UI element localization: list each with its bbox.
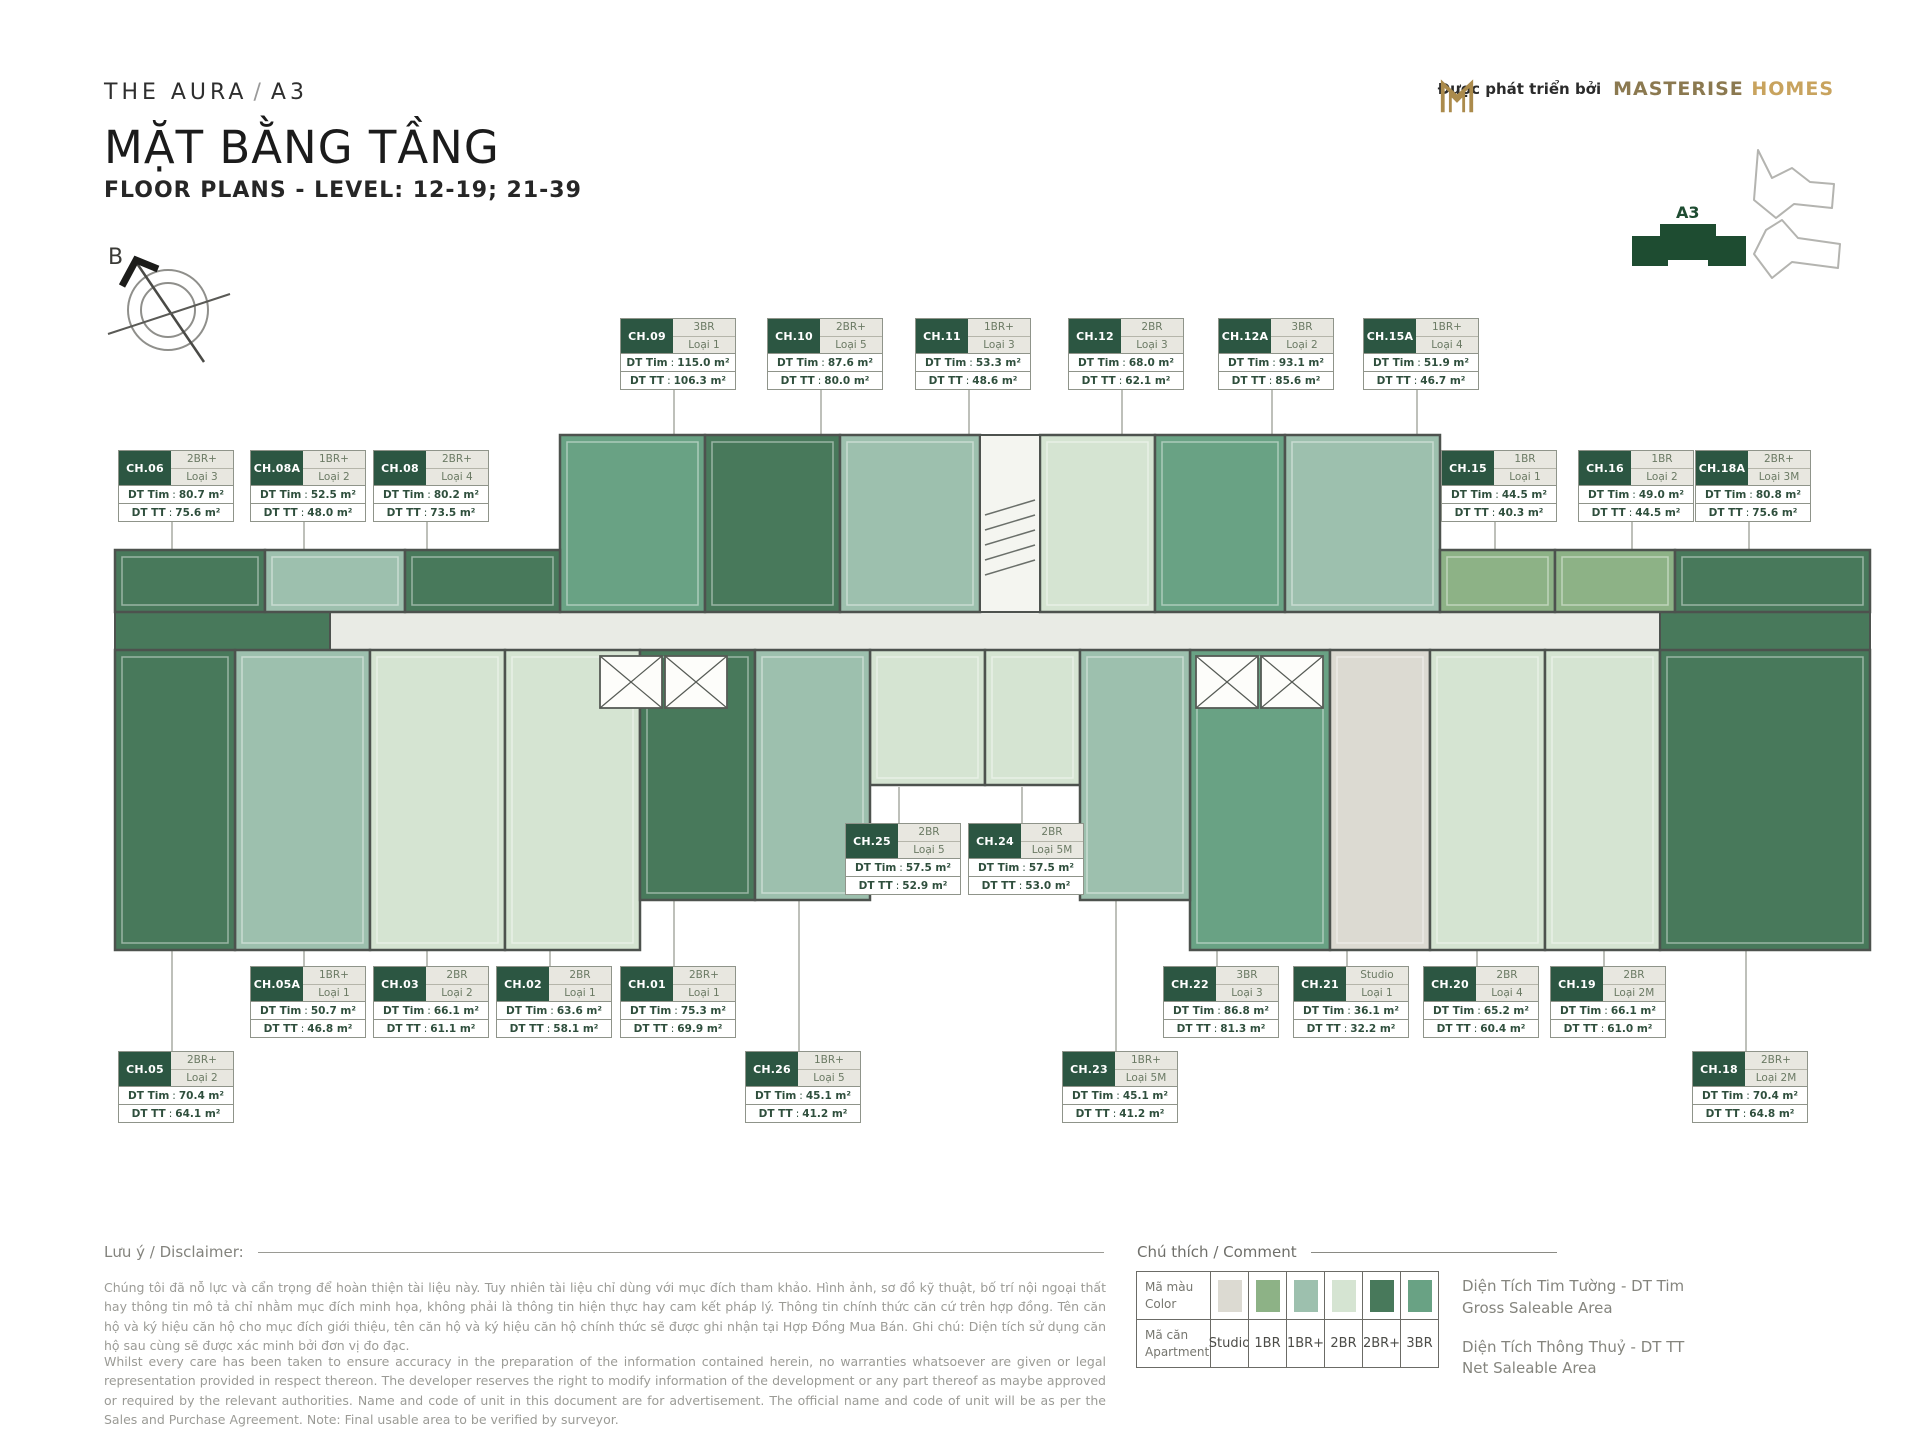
unit-net-area: DT TT62.1 m² bbox=[1068, 371, 1184, 390]
unit-variant: Loại 2M bbox=[1745, 1070, 1807, 1087]
unit-type: 1BR+ bbox=[303, 451, 365, 469]
unit-net-area: DT TT69.9 m² bbox=[620, 1019, 736, 1038]
plan-unit-CH.21 bbox=[1330, 650, 1430, 950]
floor-plan-drawing bbox=[0, 0, 1920, 1440]
color-swatch bbox=[1332, 1280, 1356, 1312]
unit-type: 2BR bbox=[1603, 967, 1665, 985]
unit-id: CH.18A bbox=[1696, 451, 1748, 485]
legend-note-net: Diện Tích Thông Thuỷ - DT TT Net Saleabl… bbox=[1462, 1337, 1842, 1381]
color-swatch bbox=[1370, 1280, 1394, 1312]
unit-card-CH.09: CH.093BRLoại 1DT Tim115.0 m²DT TT106.3 m… bbox=[620, 318, 736, 390]
unit-type: 2BR bbox=[1476, 967, 1538, 985]
unit-net-area: DT TT53.0 m² bbox=[968, 876, 1084, 895]
unit-gross-area: DT Tim45.1 m² bbox=[1062, 1086, 1178, 1105]
plan-unit-CH.19 bbox=[1545, 650, 1660, 950]
unit-id: CH.02 bbox=[497, 967, 549, 1001]
unit-variant: Loại 1 bbox=[1494, 469, 1556, 486]
unit-id: CH.11 bbox=[916, 319, 968, 353]
legend-apartment-type: 2BR bbox=[1324, 1319, 1363, 1368]
unit-card-CH.24: CH.242BRLoại 5MDT Tim57.5 m²DT TT53.0 m² bbox=[968, 823, 1084, 895]
unit-id: CH.16 bbox=[1579, 451, 1631, 485]
unit-card-CH.15A: CH.15A1BR+Loại 4DT Tim51.9 m²DT TT46.7 m… bbox=[1363, 318, 1479, 390]
unit-net-area: DT TT75.6 m² bbox=[118, 503, 234, 522]
unit-gross-area: DT Tim70.4 m² bbox=[118, 1086, 234, 1105]
unit-variant: Loại 2 bbox=[1631, 469, 1693, 486]
unit-id: CH.24 bbox=[969, 824, 1021, 858]
unit-net-area: DT TT75.6 m² bbox=[1695, 503, 1811, 522]
unit-card-header: CH.111BR+Loại 3 bbox=[915, 318, 1031, 354]
plan-unit-CH.18 bbox=[1660, 650, 1870, 950]
unit-variant: Loại 5 bbox=[898, 842, 960, 859]
unit-id: CH.12 bbox=[1069, 319, 1121, 353]
plan-unit-CH.24 bbox=[985, 650, 1080, 785]
unit-variant: Loại 4 bbox=[1416, 337, 1478, 354]
unit-net-area: DT TT48.0 m² bbox=[250, 503, 366, 522]
unit-id: CH.12A bbox=[1219, 319, 1271, 353]
disclaimer-rule bbox=[258, 1252, 1104, 1253]
plan-unit-CH.10 bbox=[705, 435, 840, 612]
unit-gross-area: DT Tim57.5 m² bbox=[968, 858, 1084, 877]
plan-unit-CH.12A bbox=[1155, 435, 1285, 612]
legend-apartment-type: 3BR bbox=[1400, 1319, 1439, 1368]
unit-id: CH.05A bbox=[251, 967, 303, 1001]
color-swatch bbox=[1408, 1280, 1432, 1312]
unit-gross-area: DT Tim80.7 m² bbox=[118, 485, 234, 504]
unit-card-CH.10: CH.102BR+Loại 5DT Tim87.6 m²DT TT80.0 m² bbox=[767, 318, 883, 390]
unit-type: 1BR bbox=[1494, 451, 1556, 469]
unit-net-area: DT TT46.7 m² bbox=[1363, 371, 1479, 390]
unit-id: CH.08A bbox=[251, 451, 303, 485]
unit-card-header: CH.15A1BR+Loại 4 bbox=[1363, 318, 1479, 354]
unit-type: 1BR+ bbox=[1416, 319, 1478, 337]
unit-net-area: DT TT41.2 m² bbox=[745, 1104, 861, 1123]
disclaimer-english: Whilst every care has been taken to ensu… bbox=[104, 1352, 1106, 1430]
color-swatch bbox=[1294, 1280, 1318, 1312]
unit-card-CH.08A: CH.08A1BR+Loại 2DT Tim52.5 m²DT TT48.0 m… bbox=[250, 450, 366, 522]
unit-variant: Loại 5 bbox=[820, 337, 882, 354]
unit-net-area: DT TT41.2 m² bbox=[1062, 1104, 1178, 1123]
unit-gross-area: DT Tim53.3 m² bbox=[915, 353, 1031, 372]
unit-card-CH.22: CH.223BRLoại 3DT Tim86.8 m²DT TT81.3 m² bbox=[1163, 966, 1279, 1038]
plan-unit-CH.08A bbox=[265, 550, 405, 612]
legend-table: Mã màu Color Mã cănApartmentStudio1BR1BR… bbox=[1137, 1272, 1439, 1368]
unit-card-header: CH.161BRLoại 2 bbox=[1578, 450, 1694, 486]
unit-gross-area: DT Tim44.5 m² bbox=[1441, 485, 1557, 504]
legend-notes: Diện Tích Tim Tường - DT Tim Gross Salea… bbox=[1462, 1276, 1842, 1397]
unit-card-CH.08: CH.082BR+Loại 4DT Tim80.2 m²DT TT73.5 m² bbox=[373, 450, 489, 522]
unit-gross-area: DT Tim115.0 m² bbox=[620, 353, 736, 372]
unit-card-header: CH.151BRLoại 1 bbox=[1441, 450, 1557, 486]
unit-card-header: CH.21StudioLoại 1 bbox=[1293, 966, 1409, 1002]
unit-variant: Loại 1 bbox=[549, 985, 611, 1002]
unit-variant: Loại 1 bbox=[673, 985, 735, 1002]
unit-card-header: CH.242BRLoại 5M bbox=[968, 823, 1084, 859]
plan-unit-CH.03 bbox=[370, 650, 505, 950]
unit-card-header: CH.08A1BR+Loại 2 bbox=[250, 450, 366, 486]
legend-color-row-label: Mã màu Color bbox=[1136, 1271, 1211, 1320]
unit-variant: Loại 1 bbox=[303, 985, 365, 1002]
unit-id: CH.19 bbox=[1551, 967, 1603, 1001]
plan-unit-CH.15 bbox=[1440, 550, 1555, 612]
legend-note-gross: Diện Tích Tim Tường - DT Tim Gross Salea… bbox=[1462, 1276, 1842, 1320]
unit-id: CH.21 bbox=[1294, 967, 1346, 1001]
unit-type: 2BR bbox=[1121, 319, 1183, 337]
unit-variant: Loại 3 bbox=[1216, 985, 1278, 1002]
unit-card-header: CH.223BRLoại 3 bbox=[1163, 966, 1279, 1002]
plan-unit-CH.09 bbox=[560, 435, 705, 612]
unit-net-area: DT TT64.1 m² bbox=[118, 1104, 234, 1123]
unit-gross-area: DT Tim49.0 m² bbox=[1578, 485, 1694, 504]
elevator-box bbox=[665, 656, 727, 708]
unit-type: 1BR+ bbox=[968, 319, 1030, 337]
plan-unit-CH.23 bbox=[1080, 650, 1190, 900]
unit-card-CH.06: CH.062BR+Loại 3DT Tim80.7 m²DT TT75.6 m² bbox=[118, 450, 234, 522]
unit-variant: Loại 2 bbox=[171, 1070, 233, 1087]
unit-type: 2BR+ bbox=[673, 967, 735, 985]
unit-variant: Loại 4 bbox=[426, 469, 488, 486]
plan-unit-CH.25 bbox=[870, 650, 985, 785]
legend-color-swatch-1BR+ bbox=[1286, 1271, 1325, 1320]
legend-color-swatch-Studio bbox=[1210, 1271, 1249, 1320]
unit-type: Studio bbox=[1346, 967, 1408, 985]
unit-net-area: DT TT44.5 m² bbox=[1578, 503, 1694, 522]
unit-id: CH.26 bbox=[746, 1052, 798, 1086]
legend-apartment-row-label: Mã cănApartment bbox=[1136, 1319, 1211, 1368]
unit-card-header: CH.18A2BR+Loại 3M bbox=[1695, 450, 1811, 486]
unit-id: CH.18 bbox=[1693, 1052, 1745, 1086]
unit-variant: Loại 2 bbox=[1271, 337, 1333, 354]
floor-plan-page: { "header": { "project": "THE AURA", "se… bbox=[0, 0, 1920, 1440]
unit-card-CH.11: CH.111BR+Loại 3DT Tim53.3 m²DT TT48.6 m² bbox=[915, 318, 1031, 390]
unit-type: 1BR+ bbox=[303, 967, 365, 985]
unit-variant: Loại 4 bbox=[1476, 985, 1538, 1002]
unit-card-CH.16: CH.161BRLoại 2DT Tim49.0 m²DT TT44.5 m² bbox=[1578, 450, 1694, 522]
unit-variant: Loại 3 bbox=[171, 469, 233, 486]
unit-type: 1BR+ bbox=[1115, 1052, 1177, 1070]
unit-card-header: CH.05A1BR+Loại 1 bbox=[250, 966, 366, 1002]
elevator-box bbox=[1261, 656, 1323, 708]
unit-gross-area: DT Tim36.1 m² bbox=[1293, 1001, 1409, 1020]
legend-apartment-type: 1BR bbox=[1248, 1319, 1287, 1368]
plan-unit-CH.08 bbox=[405, 550, 560, 612]
unit-id: CH.20 bbox=[1424, 967, 1476, 1001]
unit-net-area: DT TT60.4 m² bbox=[1423, 1019, 1539, 1038]
unit-net-area: DT TT73.5 m² bbox=[373, 503, 489, 522]
disclaimer-label: Lưu ý / Disclaimer: bbox=[104, 1243, 244, 1261]
unit-gross-area: DT Tim57.5 m² bbox=[845, 858, 961, 877]
unit-type: 1BR bbox=[1631, 451, 1693, 469]
unit-id: CH.06 bbox=[119, 451, 171, 485]
unit-card-header: CH.261BR+Loại 5 bbox=[745, 1051, 861, 1087]
unit-gross-area: DT Tim70.4 m² bbox=[1692, 1086, 1808, 1105]
unit-card-header: CH.022BRLoại 1 bbox=[496, 966, 612, 1002]
unit-variant: Loại 2 bbox=[303, 469, 365, 486]
unit-net-area: DT TT106.3 m² bbox=[620, 371, 736, 390]
unit-card-CH.05: CH.052BR+Loại 2DT Tim70.4 m²DT TT64.1 m² bbox=[118, 1051, 234, 1123]
stair-core bbox=[980, 435, 1040, 612]
right-end-connector bbox=[1660, 612, 1870, 650]
unit-gross-area: DT Tim45.1 m² bbox=[745, 1086, 861, 1105]
unit-card-header: CH.192BRLoại 2M bbox=[1550, 966, 1666, 1002]
unit-variant: Loại 3 bbox=[968, 337, 1030, 354]
legend-header: Chú thích / Comment bbox=[1137, 1243, 1557, 1261]
unit-type: 3BR bbox=[1216, 967, 1278, 985]
unit-gross-area: DT Tim66.1 m² bbox=[1550, 1001, 1666, 1020]
plan-unit-CH.20 bbox=[1430, 650, 1545, 950]
unit-card-CH.19: CH.192BRLoại 2MDT Tim66.1 m²DT TT61.0 m² bbox=[1550, 966, 1666, 1038]
plan-unit-CH.05A bbox=[235, 650, 370, 950]
unit-card-CH.18A: CH.18A2BR+Loại 3MDT Tim80.8 m²DT TT75.6 … bbox=[1695, 450, 1811, 522]
unit-variant: Loại 5M bbox=[1021, 842, 1083, 859]
unit-gross-area: DT Tim66.1 m² bbox=[373, 1001, 489, 1020]
unit-net-area: DT TT61.0 m² bbox=[1550, 1019, 1666, 1038]
unit-type: 2BR+ bbox=[426, 451, 488, 469]
unit-net-area: DT TT85.6 m² bbox=[1218, 371, 1334, 390]
unit-type: 2BR bbox=[426, 967, 488, 985]
unit-card-header: CH.231BR+Loại 5M bbox=[1062, 1051, 1178, 1087]
legend-apartment-type: Studio bbox=[1210, 1319, 1249, 1368]
unit-variant: Loại 5 bbox=[798, 1070, 860, 1087]
unit-card-CH.26: CH.261BR+Loại 5DT Tim45.1 m²DT TT41.2 m² bbox=[745, 1051, 861, 1123]
unit-net-area: DT TT81.3 m² bbox=[1163, 1019, 1279, 1038]
plan-unit-CH.15A bbox=[1285, 435, 1440, 612]
unit-card-header: CH.032BRLoại 2 bbox=[373, 966, 489, 1002]
legend-color-swatch-1BR bbox=[1248, 1271, 1287, 1320]
unit-type: 2BR bbox=[898, 824, 960, 842]
unit-gross-area: DT Tim65.2 m² bbox=[1423, 1001, 1539, 1020]
unit-id: CH.22 bbox=[1164, 967, 1216, 1001]
unit-id: CH.09 bbox=[621, 319, 673, 353]
unit-net-area: DT TT40.3 m² bbox=[1441, 503, 1557, 522]
unit-net-area: DT TT58.1 m² bbox=[496, 1019, 612, 1038]
unit-type: 2BR+ bbox=[171, 451, 233, 469]
unit-id: CH.15 bbox=[1442, 451, 1494, 485]
unit-type: 2BR+ bbox=[1748, 451, 1810, 469]
legend-rule bbox=[1311, 1252, 1557, 1253]
unit-variant: Loại 3M bbox=[1748, 469, 1810, 486]
unit-id: CH.10 bbox=[768, 319, 820, 353]
unit-id: CH.23 bbox=[1063, 1052, 1115, 1086]
unit-gross-area: DT Tim86.8 m² bbox=[1163, 1001, 1279, 1020]
unit-card-header: CH.252BRLoại 5 bbox=[845, 823, 961, 859]
plan-unit-CH.18A bbox=[1675, 550, 1870, 612]
unit-variant: Loại 1 bbox=[1346, 985, 1408, 1002]
unit-card-header: CH.202BRLoại 4 bbox=[1423, 966, 1539, 1002]
unit-net-area: DT TT32.2 m² bbox=[1293, 1019, 1409, 1038]
unit-gross-area: DT Tim50.7 m² bbox=[250, 1001, 366, 1020]
unit-gross-area: DT Tim75.3 m² bbox=[620, 1001, 736, 1020]
unit-gross-area: DT Tim80.2 m² bbox=[373, 485, 489, 504]
legend-color-swatch-2BR+ bbox=[1362, 1271, 1401, 1320]
unit-card-header: CH.082BR+Loại 4 bbox=[373, 450, 489, 486]
unit-card-header: CH.012BR+Loại 1 bbox=[620, 966, 736, 1002]
unit-type: 2BR+ bbox=[171, 1052, 233, 1070]
unit-card-header: CH.12A3BRLoại 2 bbox=[1218, 318, 1334, 354]
unit-type: 3BR bbox=[1271, 319, 1333, 337]
unit-card-CH.25: CH.252BRLoại 5DT Tim57.5 m²DT TT52.9 m² bbox=[845, 823, 961, 895]
unit-variant: Loại 3 bbox=[1121, 337, 1183, 354]
unit-net-area: DT TT80.0 m² bbox=[767, 371, 883, 390]
plan-unit-CH.05 bbox=[115, 650, 235, 950]
unit-card-header: CH.052BR+Loại 2 bbox=[118, 1051, 234, 1087]
unit-card-header: CH.062BR+Loại 3 bbox=[118, 450, 234, 486]
unit-id: CH.03 bbox=[374, 967, 426, 1001]
disclaimer-vietnamese: Chúng tôi đã nỗ lực và cẩn trọng để hoàn… bbox=[104, 1278, 1106, 1356]
unit-gross-area: DT Tim63.6 m² bbox=[496, 1001, 612, 1020]
unit-card-CH.20: CH.202BRLoại 4DT Tim65.2 m²DT TT60.4 m² bbox=[1423, 966, 1539, 1038]
color-swatch bbox=[1256, 1280, 1280, 1312]
plan-unit-CH.12 bbox=[1040, 435, 1155, 612]
unit-net-area: DT TT61.1 m² bbox=[373, 1019, 489, 1038]
legend-apartment-type: 2BR+ bbox=[1362, 1319, 1401, 1368]
unit-variant: Loại 2M bbox=[1603, 985, 1665, 1002]
unit-variant: Loại 5M bbox=[1115, 1070, 1177, 1087]
unit-card-header: CH.102BR+Loại 5 bbox=[767, 318, 883, 354]
plan-unit-CH.11 bbox=[840, 435, 980, 612]
legend-title: Chú thích / Comment bbox=[1137, 1243, 1297, 1261]
unit-card-CH.12A: CH.12A3BRLoại 2DT Tim93.1 m²DT TT85.6 m² bbox=[1218, 318, 1334, 390]
unit-type: 2BR+ bbox=[1745, 1052, 1807, 1070]
unit-net-area: DT TT52.9 m² bbox=[845, 876, 961, 895]
unit-gross-area: DT Tim93.1 m² bbox=[1218, 353, 1334, 372]
unit-card-CH.23: CH.231BR+Loại 5MDT Tim45.1 m²DT TT41.2 m… bbox=[1062, 1051, 1178, 1123]
unit-id: CH.01 bbox=[621, 967, 673, 1001]
unit-id: CH.08 bbox=[374, 451, 426, 485]
unit-type: 2BR bbox=[1021, 824, 1083, 842]
legend-apartment-type: 1BR+ bbox=[1286, 1319, 1325, 1368]
unit-net-area: DT TT48.6 m² bbox=[915, 371, 1031, 390]
unit-id: CH.15A bbox=[1364, 319, 1416, 353]
corridor bbox=[330, 612, 1660, 650]
legend-color-swatch-2BR bbox=[1324, 1271, 1363, 1320]
unit-card-CH.18: CH.182BR+Loại 2MDT Tim70.4 m²DT TT64.8 m… bbox=[1692, 1051, 1808, 1123]
unit-variant: Loại 1 bbox=[673, 337, 735, 354]
legend-color-swatch-3BR bbox=[1400, 1271, 1439, 1320]
unit-card-CH.02: CH.022BRLoại 1DT Tim63.6 m²DT TT58.1 m² bbox=[496, 966, 612, 1038]
unit-type: 2BR+ bbox=[820, 319, 882, 337]
unit-card-header: CH.093BRLoại 1 bbox=[620, 318, 736, 354]
disclaimer-header: Lưu ý / Disclaimer: bbox=[104, 1243, 1104, 1261]
unit-gross-area: DT Tim51.9 m² bbox=[1363, 353, 1479, 372]
unit-type: 2BR bbox=[549, 967, 611, 985]
unit-card-header: CH.122BRLoại 3 bbox=[1068, 318, 1184, 354]
unit-id: CH.05 bbox=[119, 1052, 171, 1086]
unit-type: 3BR bbox=[673, 319, 735, 337]
unit-gross-area: DT Tim87.6 m² bbox=[767, 353, 883, 372]
unit-card-CH.03: CH.032BRLoại 2DT Tim66.1 m²DT TT61.1 m² bbox=[373, 966, 489, 1038]
elevator-box bbox=[1196, 656, 1258, 708]
unit-card-CH.12: CH.122BRLoại 3DT Tim68.0 m²DT TT62.1 m² bbox=[1068, 318, 1184, 390]
unit-card-CH.21: CH.21StudioLoại 1DT Tim36.1 m²DT TT32.2 … bbox=[1293, 966, 1409, 1038]
unit-card-CH.05A: CH.05A1BR+Loại 1DT Tim50.7 m²DT TT46.8 m… bbox=[250, 966, 366, 1038]
elevator-box bbox=[600, 656, 662, 708]
unit-card-CH.15: CH.151BRLoại 1DT Tim44.5 m²DT TT40.3 m² bbox=[1441, 450, 1557, 522]
unit-gross-area: DT Tim68.0 m² bbox=[1068, 353, 1184, 372]
unit-gross-area: DT Tim80.8 m² bbox=[1695, 485, 1811, 504]
unit-type: 1BR+ bbox=[798, 1052, 860, 1070]
color-swatch bbox=[1218, 1280, 1242, 1312]
unit-net-area: DT TT46.8 m² bbox=[250, 1019, 366, 1038]
left-end-connector bbox=[115, 612, 330, 650]
plan-unit-CH.06 bbox=[115, 550, 265, 612]
unit-card-CH.01: CH.012BR+Loại 1DT Tim75.3 m²DT TT69.9 m² bbox=[620, 966, 736, 1038]
unit-gross-area: DT Tim52.5 m² bbox=[250, 485, 366, 504]
unit-net-area: DT TT64.8 m² bbox=[1692, 1104, 1808, 1123]
unit-card-header: CH.182BR+Loại 2M bbox=[1692, 1051, 1808, 1087]
unit-id: CH.25 bbox=[846, 824, 898, 858]
unit-variant: Loại 2 bbox=[426, 985, 488, 1002]
plan-unit-CH.16 bbox=[1555, 550, 1675, 612]
